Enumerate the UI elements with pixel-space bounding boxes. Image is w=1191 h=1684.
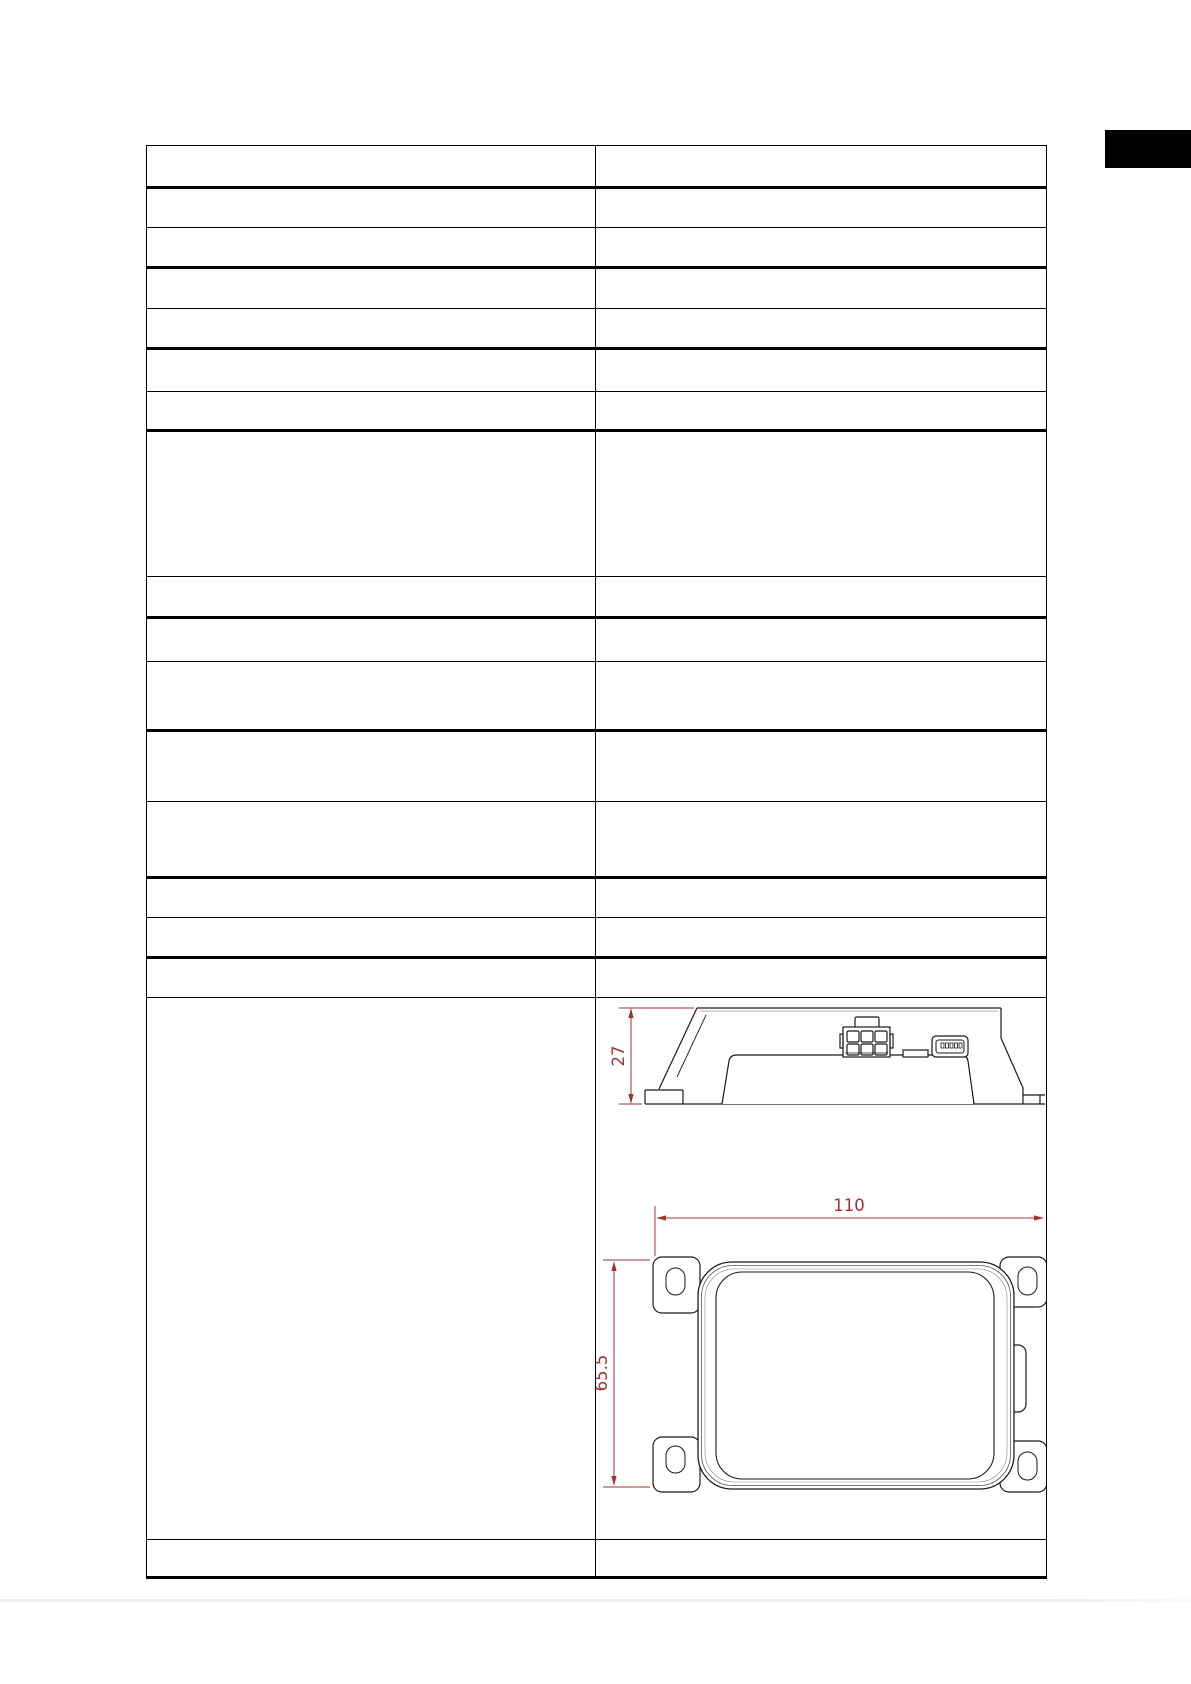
spec-cell-label	[147, 228, 596, 266]
spec-row	[147, 350, 1046, 392]
dimension-height-label: 27	[609, 1046, 628, 1067]
spec-row	[147, 577, 1046, 619]
spec-row	[147, 392, 1046, 432]
six-pin-connector	[840, 1017, 893, 1057]
spec-cell-label	[147, 879, 596, 917]
spec-row	[147, 802, 1046, 879]
spec-row	[147, 269, 1046, 309]
dimension-width: 110	[655, 1196, 1044, 1256]
spec-cell-value	[596, 146, 1046, 186]
dimension-depth: 65.5	[596, 1260, 650, 1487]
spec-row	[147, 918, 1046, 959]
dimension-width-label: 110	[833, 1196, 865, 1215]
side-view	[645, 1008, 1045, 1104]
spec-cell-label	[147, 350, 596, 391]
spec-row	[147, 309, 1046, 350]
spec-cell-label	[147, 146, 596, 186]
spec-cell-label	[147, 1540, 596, 1578]
spec-row	[147, 879, 1046, 918]
spec-cell-value	[596, 392, 1046, 429]
technical-drawing: 27	[596, 997, 1046, 1539]
spec-row	[147, 732, 1046, 802]
spec-cell-value	[596, 662, 1046, 729]
drawing-svg: 27	[596, 997, 1046, 1539]
spec-row	[147, 619, 1046, 662]
spec-cell-label	[147, 732, 596, 801]
spec-cell-value	[596, 350, 1046, 391]
section-tab-marker	[1105, 130, 1191, 168]
spec-cell-value	[596, 802, 1046, 876]
spec-row	[147, 662, 1046, 732]
spec-cell-value	[596, 189, 1046, 227]
spec-cell-value	[596, 577, 1046, 616]
spec-cell-value	[596, 619, 1046, 661]
spec-cell-value	[596, 1540, 1046, 1578]
spec-cell-label	[147, 309, 596, 347]
spec-cell-value	[596, 959, 1046, 997]
spec-cell-label	[147, 998, 596, 1539]
spec-cell-label	[147, 662, 596, 729]
spec-row	[147, 228, 1046, 269]
spec-row	[147, 1540, 1046, 1578]
spec-row	[147, 189, 1046, 228]
dimension-depth-label: 65.5	[596, 1355, 611, 1392]
spec-cell-value	[596, 309, 1046, 347]
spec-cell-label	[147, 189, 596, 227]
spec-cell-label	[147, 432, 596, 576]
spec-cell-label	[147, 918, 596, 956]
spec-cell-value	[596, 879, 1046, 917]
spec-row	[147, 146, 1046, 189]
spec-cell-value	[596, 269, 1046, 308]
spec-cell-value	[596, 228, 1046, 266]
spec-row	[147, 959, 1046, 998]
spec-cell-label	[147, 269, 596, 308]
page-bottom-rule	[0, 1599, 1191, 1602]
spec-row	[147, 432, 1046, 577]
spec-cell-label	[147, 959, 596, 997]
spec-cell-label	[147, 802, 596, 876]
spec-cell-label	[147, 392, 596, 429]
page: 27	[0, 0, 1191, 1684]
spec-cell-value	[596, 732, 1046, 801]
spec-cell-label	[147, 577, 596, 616]
mini-usb-port	[932, 1036, 968, 1057]
spec-cell-value	[596, 918, 1046, 956]
spec-cell-label	[147, 619, 596, 661]
top-view	[653, 1257, 1046, 1492]
spec-cell-value	[596, 432, 1046, 576]
